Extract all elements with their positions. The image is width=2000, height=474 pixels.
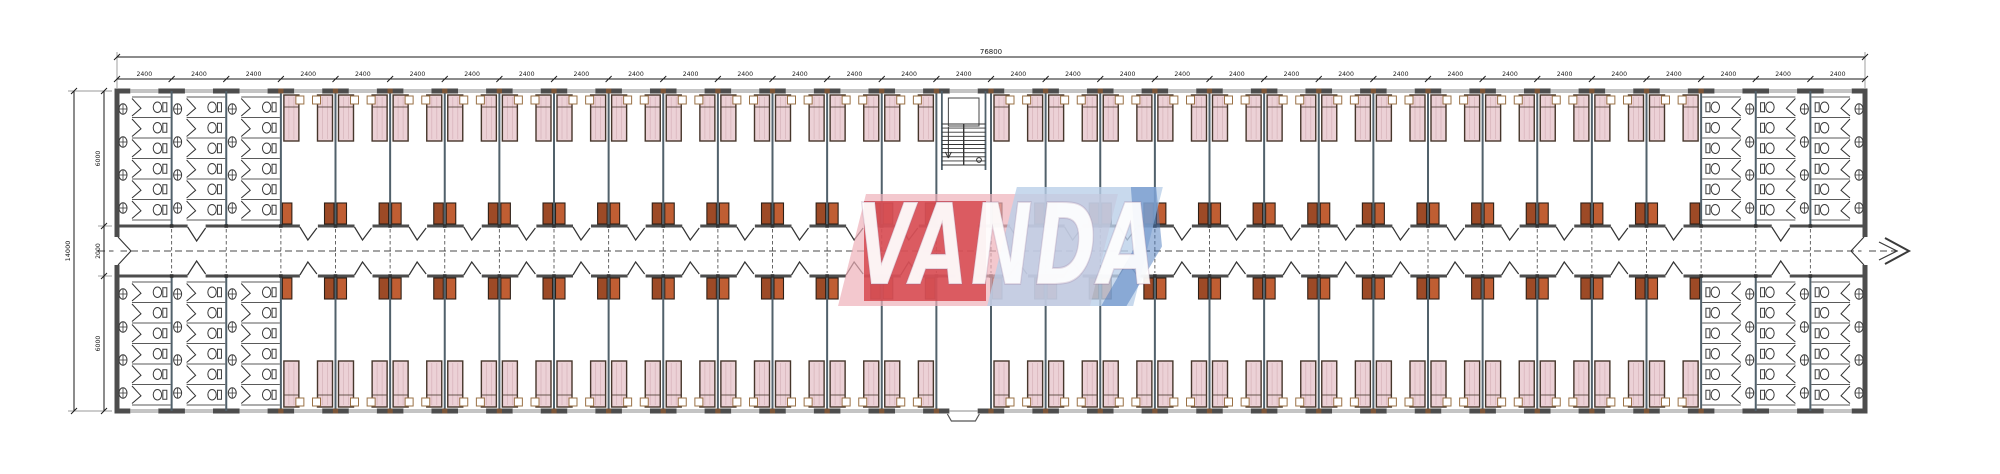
window xyxy=(1332,408,1360,413)
wardrobe xyxy=(883,278,893,299)
toilet-icon xyxy=(1815,123,1829,133)
window xyxy=(786,88,814,93)
pillow xyxy=(531,96,539,104)
toilet-icon xyxy=(208,308,222,318)
toilet-icon xyxy=(153,308,167,318)
washbasin-icon xyxy=(228,289,236,299)
door-swing xyxy=(300,262,317,275)
wardrobe xyxy=(543,203,553,224)
stall-door-swing xyxy=(132,201,141,219)
wardrobe xyxy=(762,278,772,299)
stall-door-swing xyxy=(132,386,141,404)
wardrobe xyxy=(1484,278,1494,299)
door-swing xyxy=(1283,227,1300,240)
wardrobe xyxy=(543,278,553,299)
toilet-icon xyxy=(1815,369,1829,379)
door-swing xyxy=(682,262,699,275)
wardrobe xyxy=(1375,278,1385,299)
wardrobe xyxy=(665,203,675,224)
toilet-icon xyxy=(1761,349,1775,359)
window xyxy=(294,88,322,93)
pillow xyxy=(1279,96,1287,104)
door-swing xyxy=(409,227,426,240)
wardrobe xyxy=(652,278,662,299)
wardrobe xyxy=(1472,203,1482,224)
pillow xyxy=(624,398,632,406)
stair-down-arrow-icon xyxy=(945,127,951,158)
pillow xyxy=(367,398,375,406)
washbasin-icon xyxy=(228,388,236,398)
wardrobe xyxy=(707,278,717,299)
door-swing xyxy=(1010,262,1027,275)
wardrobe xyxy=(556,278,566,299)
stall-door-swing xyxy=(1786,160,1795,178)
pillow xyxy=(1514,96,1522,104)
washbasin-icon xyxy=(1800,203,1808,213)
pillow xyxy=(1225,398,1233,406)
wardrobe xyxy=(993,278,1003,299)
wardrobe xyxy=(707,203,717,224)
toilet-icon xyxy=(153,102,167,112)
toilet-icon xyxy=(153,328,167,338)
toilet-icon xyxy=(1761,328,1775,338)
window xyxy=(1496,408,1524,413)
svg-text:2400: 2400 xyxy=(355,71,371,78)
toilet-icon xyxy=(1815,143,1829,153)
toilet-icon xyxy=(1706,369,1720,379)
stall-door-swing xyxy=(187,140,196,158)
toilet-icon xyxy=(262,143,276,153)
stall-door-swing xyxy=(1841,160,1850,178)
stall-door-swing xyxy=(241,284,250,302)
svg-text:2400: 2400 xyxy=(847,71,863,78)
pillow xyxy=(1607,96,1615,104)
window xyxy=(349,408,377,413)
door-swing xyxy=(1392,227,1409,240)
stall-door-swing xyxy=(1786,99,1795,117)
toilet-icon xyxy=(1706,349,1720,359)
window xyxy=(130,408,158,413)
washbasin-icon xyxy=(228,137,236,147)
wardrobe xyxy=(488,278,498,299)
pillow xyxy=(1498,398,1506,406)
pillow xyxy=(405,398,413,406)
pillow xyxy=(1077,96,1085,104)
washbasin-icon xyxy=(174,388,182,398)
toilet-icon xyxy=(208,390,222,400)
stall-door-swing xyxy=(1841,304,1850,322)
wardrobe xyxy=(774,203,784,224)
pillow xyxy=(1350,398,1358,406)
window xyxy=(1004,88,1032,93)
pillow xyxy=(1624,96,1632,104)
stall-door-swing xyxy=(1786,366,1795,384)
toilet-icon xyxy=(153,369,167,379)
window xyxy=(622,88,650,93)
pillow xyxy=(842,96,850,104)
wardrobe xyxy=(501,278,511,299)
pillow xyxy=(1405,398,1413,406)
toilet-icon xyxy=(262,205,276,215)
wardrobe xyxy=(1102,278,1112,299)
pillow xyxy=(531,398,539,406)
door-swing xyxy=(1502,262,1519,275)
svg-text:2400: 2400 xyxy=(1775,71,1791,78)
window xyxy=(1114,408,1142,413)
wardrobe xyxy=(282,278,292,299)
washbasin-icon xyxy=(1855,388,1863,398)
washbasin-icon xyxy=(228,104,236,114)
svg-text:2400: 2400 xyxy=(1229,71,1245,78)
pillow xyxy=(569,96,577,104)
washbasin-icon xyxy=(174,137,182,147)
wardrobe xyxy=(1417,278,1427,299)
pillow xyxy=(1115,398,1123,406)
wardrobe xyxy=(1047,203,1057,224)
wardrobe xyxy=(925,278,935,299)
washbasin-icon xyxy=(1746,203,1754,213)
stall-door-swing xyxy=(132,119,141,137)
svg-text:2400: 2400 xyxy=(464,71,480,78)
svg-text:2400: 2400 xyxy=(410,71,426,78)
door-swing xyxy=(682,227,699,240)
toilet-icon xyxy=(208,328,222,338)
wardrobe xyxy=(1690,278,1700,299)
wardrobe xyxy=(556,203,566,224)
window xyxy=(1824,408,1852,413)
pillow xyxy=(586,96,594,104)
stall-door-swing xyxy=(1786,345,1795,363)
wardrobe xyxy=(1539,278,1549,299)
washbasin-icon xyxy=(119,104,127,114)
door-swing xyxy=(355,227,372,240)
window xyxy=(240,408,268,413)
stall-door-swing xyxy=(1841,201,1850,219)
wardrobe xyxy=(379,203,389,224)
wardrobe xyxy=(719,203,729,224)
pillow xyxy=(1077,398,1085,406)
wardrobe xyxy=(925,203,935,224)
stall-door-swing xyxy=(187,99,196,117)
pillow xyxy=(476,398,484,406)
door-swing xyxy=(1772,261,1790,275)
pillow xyxy=(1388,398,1396,406)
window xyxy=(731,88,759,93)
door-swing xyxy=(464,262,481,275)
stall-door-swing xyxy=(132,181,141,199)
pillow xyxy=(1296,398,1304,406)
wardrobe xyxy=(993,203,1003,224)
window xyxy=(513,408,541,413)
stall-door-swing xyxy=(187,366,196,384)
stall-door-swing xyxy=(1732,284,1741,302)
wardrobe xyxy=(501,203,511,224)
wardrobe xyxy=(488,203,498,224)
wardrobe xyxy=(337,203,347,224)
wardrobe xyxy=(598,278,608,299)
window xyxy=(840,408,868,413)
wardrobe xyxy=(337,278,347,299)
stall-door-swing xyxy=(241,386,250,404)
window xyxy=(349,88,377,93)
door-swing xyxy=(792,227,809,240)
pillow xyxy=(514,96,522,104)
door-swing xyxy=(1447,227,1464,240)
washbasin-icon xyxy=(1746,289,1754,299)
pillow xyxy=(1115,96,1123,104)
stall-door-swing xyxy=(241,119,250,137)
window xyxy=(403,88,431,93)
pillow xyxy=(733,398,741,406)
pillow xyxy=(422,96,430,104)
door-swing xyxy=(1666,227,1683,240)
door-swing xyxy=(1065,227,1082,240)
window xyxy=(622,408,650,413)
stall-door-swing xyxy=(1841,99,1850,117)
window xyxy=(1714,408,1742,413)
pillow xyxy=(1388,96,1396,104)
toilet-icon xyxy=(262,328,276,338)
dimension-top: 7680024002400240024002400240024002400240… xyxy=(114,48,1868,88)
pillow xyxy=(1569,96,1577,104)
pillow xyxy=(1569,398,1577,406)
wardrobe xyxy=(1417,203,1427,224)
washbasin-icon xyxy=(1746,137,1754,147)
door-swing xyxy=(1338,262,1355,275)
stall-door-swing xyxy=(1841,284,1850,302)
window xyxy=(840,88,868,93)
stall-door-swing xyxy=(132,160,141,178)
wardrobe xyxy=(1144,203,1154,224)
window xyxy=(403,408,431,413)
window xyxy=(1769,88,1797,93)
pillow xyxy=(1350,96,1358,104)
stall-door-swing xyxy=(1841,119,1850,137)
stall-door-swing xyxy=(1732,140,1741,158)
door-swing xyxy=(1556,262,1573,275)
pillow xyxy=(1678,398,1686,406)
pillow xyxy=(624,96,632,104)
svg-text:2400: 2400 xyxy=(628,71,644,78)
toilet-icon xyxy=(153,205,167,215)
pillow xyxy=(1460,96,1468,104)
svg-text:2400: 2400 xyxy=(136,71,152,78)
pillow xyxy=(788,398,796,406)
washbasin-icon xyxy=(1855,322,1863,332)
stall-door-swing xyxy=(1732,345,1741,363)
floor-plan-canvas: 7680024002400240024002400240024002400240… xyxy=(0,0,2000,474)
washbasin-icon xyxy=(119,322,127,332)
door-swing xyxy=(188,227,206,241)
toilet-icon xyxy=(153,349,167,359)
pillow xyxy=(296,398,304,406)
wardrobe xyxy=(1472,278,1482,299)
toilet-icon xyxy=(1815,390,1829,400)
toilet-icon xyxy=(1706,102,1720,112)
wardrobe xyxy=(1430,278,1440,299)
toilet-icon xyxy=(262,184,276,194)
door-swing xyxy=(1119,262,1136,275)
washbasin-icon xyxy=(174,203,182,213)
pillow xyxy=(1187,398,1195,406)
svg-text:2400: 2400 xyxy=(246,71,262,78)
pillow xyxy=(640,96,648,104)
wardrobe xyxy=(1539,203,1549,224)
stall-door-swing xyxy=(1732,181,1741,199)
wardrobe xyxy=(829,203,839,224)
toilet-icon xyxy=(1706,390,1720,400)
door-swing xyxy=(1065,262,1082,275)
wardrobe xyxy=(434,203,444,224)
pillow xyxy=(1514,398,1522,406)
wardrobe xyxy=(325,278,335,299)
pillow xyxy=(1241,96,1249,104)
pillow xyxy=(897,96,905,104)
toilet-icon xyxy=(1815,328,1829,338)
window xyxy=(786,408,814,413)
wardrobe xyxy=(1593,203,1603,224)
stall-door-swing xyxy=(241,181,250,199)
toilet-icon xyxy=(208,143,222,153)
pillow xyxy=(367,96,375,104)
stall-door-swing xyxy=(1732,325,1741,343)
stall-door-swing xyxy=(1841,181,1850,199)
window xyxy=(1332,88,1360,93)
door-swing xyxy=(737,262,754,275)
wardrobe xyxy=(1156,278,1166,299)
stall-door-swing xyxy=(1732,366,1741,384)
toilet-icon xyxy=(262,349,276,359)
stall-door-swing xyxy=(132,284,141,302)
stall-door-swing xyxy=(1786,119,1795,137)
wardrobe xyxy=(1253,278,1263,299)
window xyxy=(1277,408,1305,413)
svg-text:76800: 76800 xyxy=(980,48,1002,56)
svg-text:2000: 2000 xyxy=(95,243,102,259)
window xyxy=(185,88,213,93)
stall-door-swing xyxy=(241,366,250,384)
stall-door-swing xyxy=(1786,140,1795,158)
pillow xyxy=(1061,96,1069,104)
toilet-icon xyxy=(1706,308,1720,318)
toilet-icon xyxy=(153,123,167,133)
wardrobe xyxy=(774,278,784,299)
washbasin-icon xyxy=(1746,388,1754,398)
svg-text:2400: 2400 xyxy=(901,71,917,78)
pillow xyxy=(913,398,921,406)
stall-door-swing xyxy=(241,304,250,322)
pillow xyxy=(750,96,758,104)
pillow xyxy=(1443,96,1451,104)
door-swing xyxy=(1772,227,1790,241)
washbasin-icon xyxy=(1746,322,1754,332)
toilet-icon xyxy=(1761,287,1775,297)
window xyxy=(185,408,213,413)
wardrobe xyxy=(434,278,444,299)
pillow xyxy=(695,398,703,406)
wardrobe xyxy=(610,203,620,224)
window xyxy=(1441,408,1469,413)
pillow xyxy=(1006,398,1014,406)
washbasin-icon xyxy=(228,322,236,332)
svg-text:2400: 2400 xyxy=(1120,71,1136,78)
pillow xyxy=(913,96,921,104)
toilet-icon xyxy=(1706,123,1720,133)
svg-text:6000: 6000 xyxy=(95,336,102,352)
window xyxy=(677,88,705,93)
toilet-icon xyxy=(208,102,222,112)
svg-text:2400: 2400 xyxy=(792,71,808,78)
washbasin-icon xyxy=(1800,322,1808,332)
wardrobe xyxy=(392,203,402,224)
door-swing xyxy=(1229,262,1246,275)
pillow xyxy=(476,96,484,104)
washbasin-icon xyxy=(1800,170,1808,180)
toilet-icon xyxy=(1815,184,1829,194)
pillow xyxy=(569,398,577,406)
pillow xyxy=(678,96,686,104)
wardrobe xyxy=(610,278,620,299)
pillow xyxy=(1225,96,1233,104)
door-swing xyxy=(1666,262,1683,275)
pillow xyxy=(460,96,468,104)
stall-door-swing xyxy=(132,99,141,117)
washbasin-icon xyxy=(119,203,127,213)
svg-text:14000: 14000 xyxy=(64,241,72,262)
pillow xyxy=(1624,398,1632,406)
door-swing xyxy=(188,261,206,275)
toilet-icon xyxy=(1706,143,1720,153)
svg-text:2400: 2400 xyxy=(683,71,699,78)
wardrobe xyxy=(762,203,772,224)
toilet-icon xyxy=(262,123,276,133)
stall-door-swing xyxy=(187,201,196,219)
stall-door-swing xyxy=(187,181,196,199)
window xyxy=(1223,408,1251,413)
pillow xyxy=(1023,96,1031,104)
pillow xyxy=(1241,398,1249,406)
window xyxy=(1114,88,1142,93)
stall-door-swing xyxy=(187,284,196,302)
staircase xyxy=(942,91,986,170)
toilet-icon xyxy=(1815,164,1829,174)
pillow xyxy=(1334,398,1342,406)
door-swing xyxy=(628,262,645,275)
door-swing xyxy=(737,227,754,240)
svg-text:2400: 2400 xyxy=(573,71,589,78)
pillow xyxy=(313,398,321,406)
pillow xyxy=(1662,398,1670,406)
window xyxy=(677,408,705,413)
window xyxy=(567,408,595,413)
window xyxy=(1660,408,1688,413)
wardrobe xyxy=(1035,278,1045,299)
pillow xyxy=(750,398,758,406)
pillow xyxy=(733,96,741,104)
wardrobe xyxy=(1089,278,1099,299)
toilet-icon xyxy=(1815,205,1829,215)
stall-door-swing xyxy=(241,160,250,178)
door-swing xyxy=(518,262,535,275)
stall-door-swing xyxy=(1732,99,1741,117)
wardrobe xyxy=(1581,278,1591,299)
door-swing xyxy=(1010,227,1027,240)
toilet-icon xyxy=(208,123,222,133)
pillow xyxy=(804,96,812,104)
svg-text:2400: 2400 xyxy=(1338,71,1354,78)
stall-door-swing xyxy=(132,366,141,384)
stall-door-swing xyxy=(241,325,250,343)
